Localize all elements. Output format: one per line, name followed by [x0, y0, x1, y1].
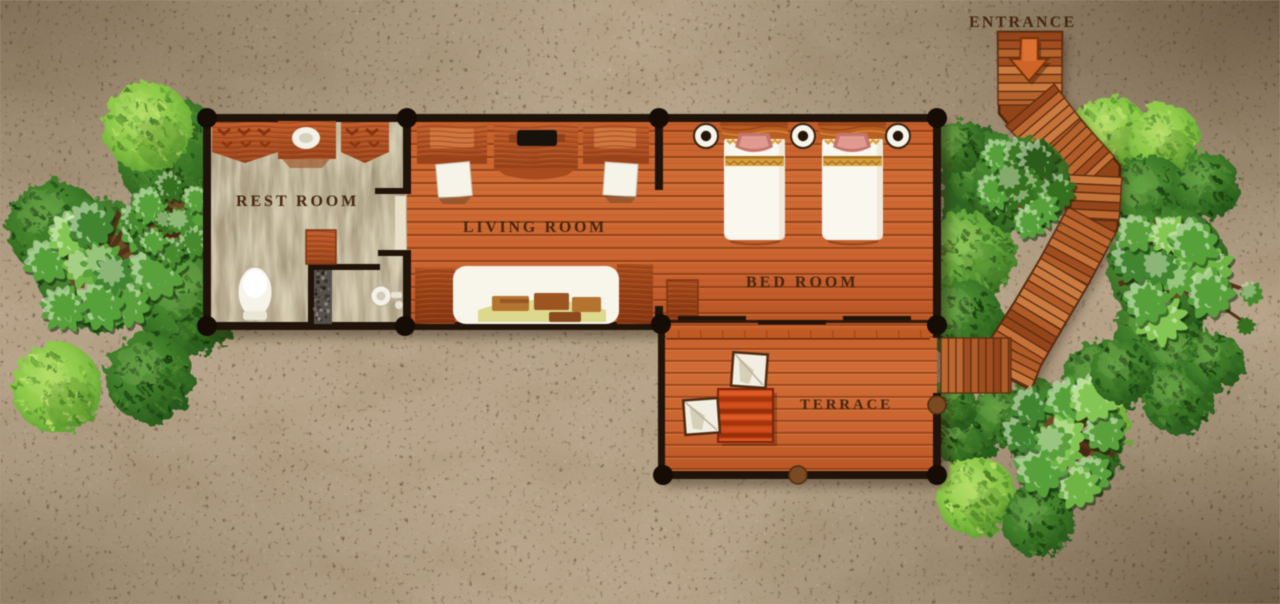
svg-text:ENTRANCE: ENTRANCE: [969, 14, 1076, 31]
svg-text:BED ROOM: BED ROOM: [746, 274, 858, 291]
svg-text:REST ROOM: REST ROOM: [236, 193, 359, 210]
svg-text:LIVING ROOM: LIVING ROOM: [463, 219, 607, 236]
svg-text:TERRACE: TERRACE: [800, 397, 893, 413]
